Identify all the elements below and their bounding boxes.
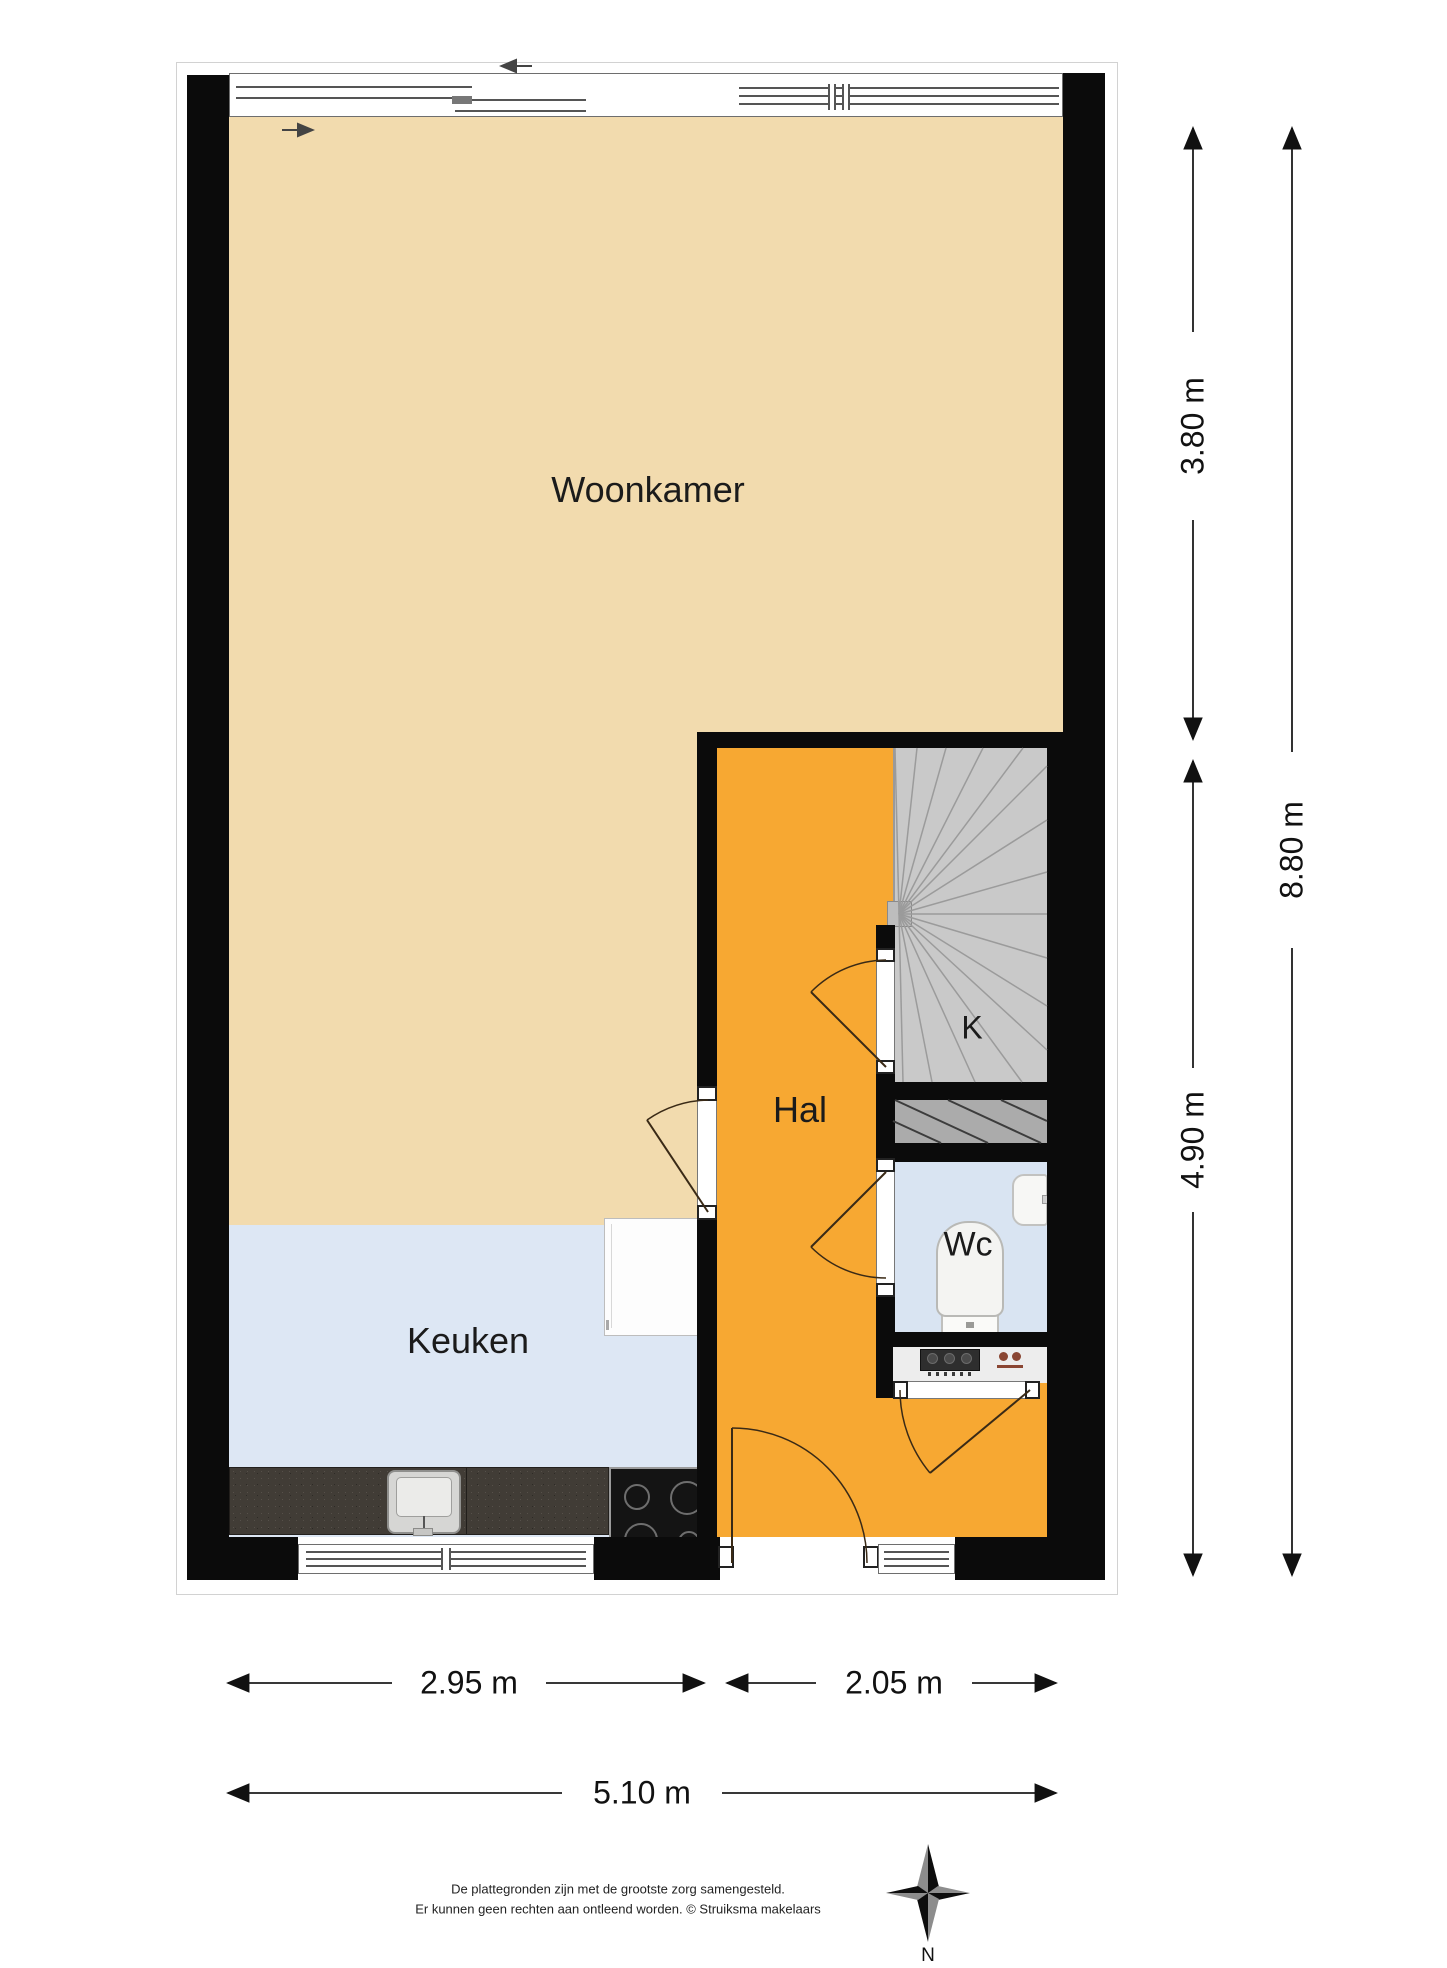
dim-height-top: 3.80 m xyxy=(1175,367,1212,485)
kast-label: K xyxy=(961,1010,982,1047)
footer-disclaimer-line1: De plattegronden zijn met de grootste zo… xyxy=(451,1882,785,1897)
woonkamer-door-arc xyxy=(647,1100,708,1120)
compass-north-label: N xyxy=(921,1945,935,1967)
dim-height-total: 8.80 m xyxy=(1274,791,1311,909)
wc-label: Wc xyxy=(943,1226,992,1265)
dim-height-bottom: 4.90 m xyxy=(1175,1081,1212,1199)
kast-door-arc xyxy=(811,960,886,992)
front-door-arc xyxy=(732,1428,867,1563)
kast-door-leaf xyxy=(811,992,886,1067)
woonkamer-label: Woonkamer xyxy=(551,469,744,511)
keuken-label: Keuken xyxy=(407,1320,529,1362)
dim-width-total: 5.10 m xyxy=(583,1775,701,1812)
hal-label: Hal xyxy=(773,1089,827,1131)
dim-width-right: 2.05 m xyxy=(835,1665,953,1702)
meterkast-door-leaf xyxy=(930,1390,1030,1473)
plan-overlay xyxy=(0,0,1447,1968)
footer-disclaimer-line2: Er kunnen geen rechten aan ontleend word… xyxy=(415,1902,821,1917)
floorplan-canvas: Woonkamer Keuken Hal K Wc 3.80 m 4.90 m … xyxy=(0,0,1447,1968)
dimension-lines xyxy=(228,128,1292,1793)
meterkast-door-arc xyxy=(900,1390,930,1473)
wc-door-arc xyxy=(811,1247,886,1278)
wc-door-leaf xyxy=(811,1172,886,1247)
stair-hatch-lines xyxy=(893,1100,1047,1143)
sliding-direction-arrows xyxy=(282,66,532,130)
woonkamer-door-leaf xyxy=(647,1120,708,1212)
compass-rose xyxy=(886,1844,970,1942)
dim-width-left: 2.95 m xyxy=(410,1665,528,1702)
